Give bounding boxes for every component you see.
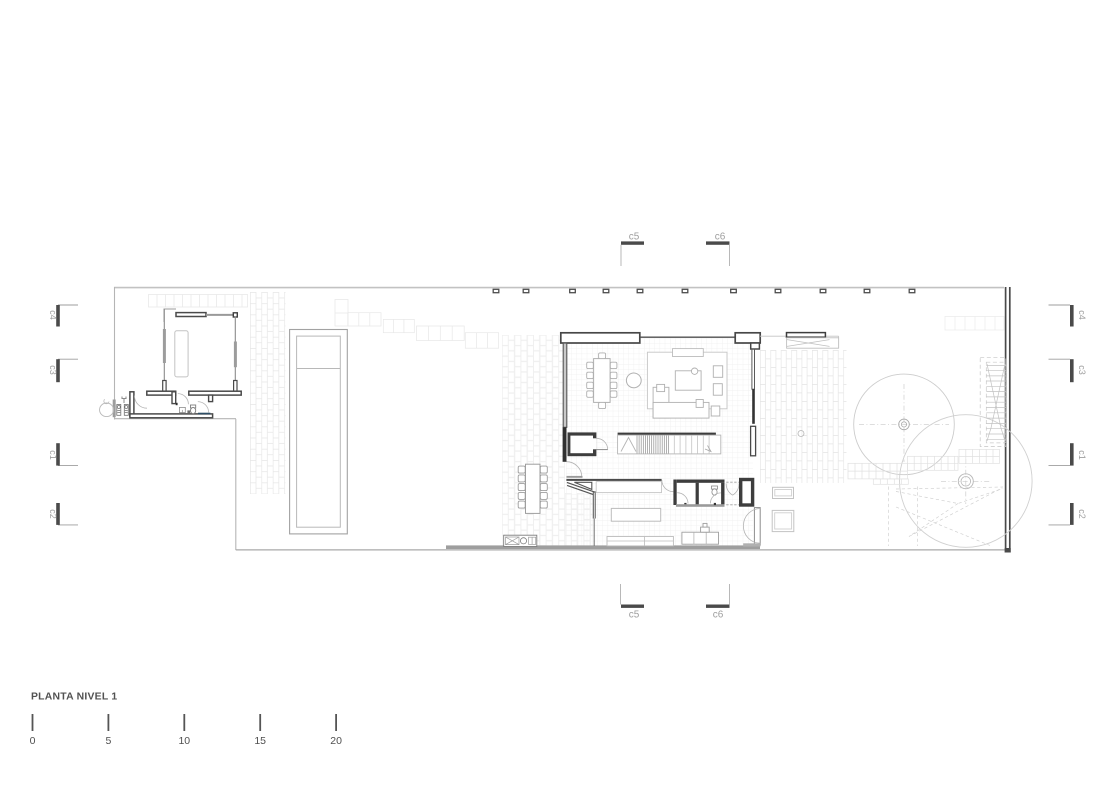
svg-text:c4: c4: [48, 310, 58, 320]
svg-text:0: 0: [30, 735, 36, 747]
svg-text:15: 15: [254, 735, 266, 747]
svg-text:c6: c6: [713, 610, 724, 621]
svg-text:c4: c4: [1077, 310, 1087, 320]
svg-text:c2: c2: [1077, 509, 1087, 519]
svg-text:10: 10: [178, 735, 190, 747]
svg-text:5: 5: [105, 735, 111, 747]
svg-text:20: 20: [330, 735, 342, 747]
svg-text:PLANTA NIVEL 1: PLANTA NIVEL 1: [31, 692, 117, 703]
svg-text:c5: c5: [629, 610, 640, 621]
svg-text:c2: c2: [48, 509, 58, 519]
svg-text:c6: c6: [715, 232, 726, 243]
svg-text:c1: c1: [1077, 450, 1087, 460]
svg-text:c3: c3: [48, 365, 58, 375]
svg-text:c1: c1: [48, 450, 58, 460]
svg-text:c5: c5: [629, 232, 640, 243]
svg-text:c3: c3: [1077, 365, 1087, 375]
